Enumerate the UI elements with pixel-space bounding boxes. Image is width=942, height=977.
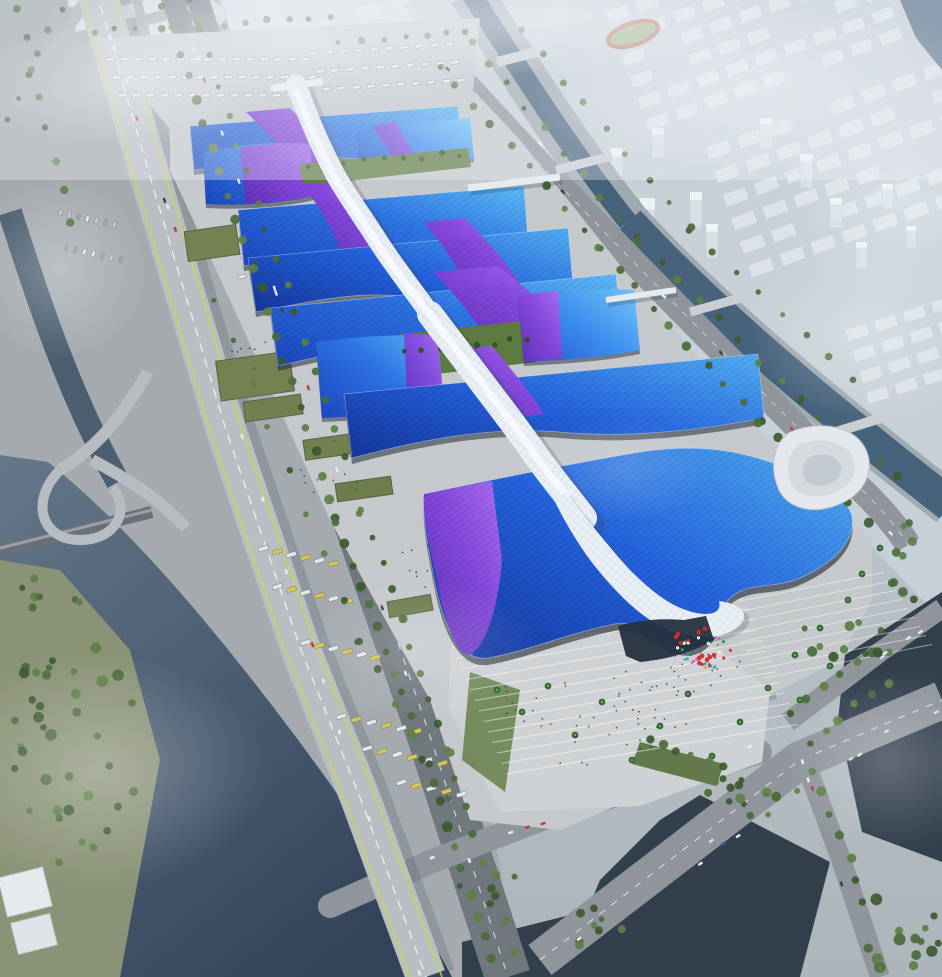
person <box>286 341 288 343</box>
tree <box>419 757 426 764</box>
tree <box>853 658 861 666</box>
tree <box>446 748 454 756</box>
festival-flag <box>676 646 679 649</box>
tree <box>893 472 902 481</box>
person <box>639 748 641 750</box>
tree <box>735 781 744 790</box>
tree <box>898 587 908 597</box>
tree <box>340 539 350 549</box>
person <box>651 686 653 688</box>
tree <box>318 472 327 481</box>
person <box>711 670 713 672</box>
tree <box>878 627 885 634</box>
tree <box>462 803 469 810</box>
palm-crown <box>521 711 523 713</box>
tree <box>726 783 734 791</box>
person <box>350 455 352 457</box>
red-lantern <box>697 661 702 666</box>
person <box>576 725 578 727</box>
tree <box>734 336 741 343</box>
palm-crown <box>847 599 849 601</box>
palm-crown <box>631 759 633 761</box>
garden-tree <box>492 342 497 347</box>
person <box>666 683 668 685</box>
person <box>574 741 576 743</box>
person <box>411 549 413 551</box>
tree <box>900 523 906 529</box>
tree <box>370 535 376 541</box>
person <box>624 701 626 703</box>
tree <box>29 604 37 612</box>
person <box>673 687 675 689</box>
tree <box>451 843 458 850</box>
person <box>674 655 676 657</box>
tree <box>263 307 272 316</box>
person <box>714 657 716 659</box>
tree <box>840 645 848 653</box>
person <box>523 720 525 722</box>
person <box>693 691 695 693</box>
tree <box>740 399 747 406</box>
tree <box>341 453 348 460</box>
person <box>681 663 683 665</box>
person <box>644 728 646 730</box>
tree <box>426 760 433 767</box>
tree <box>480 859 487 866</box>
tree <box>430 778 439 787</box>
festival-flag <box>729 649 732 652</box>
person <box>532 710 534 712</box>
tree <box>348 484 354 490</box>
person <box>540 725 542 727</box>
tree <box>845 621 855 631</box>
tree <box>575 941 584 950</box>
tree <box>321 550 328 557</box>
festival-flag <box>697 636 700 639</box>
tree <box>888 579 896 587</box>
person <box>650 746 652 748</box>
festival-flag <box>722 656 725 659</box>
festival-flag <box>722 640 725 643</box>
person <box>579 716 581 718</box>
person <box>304 482 306 484</box>
tree <box>442 821 453 832</box>
palm-crown <box>879 547 881 549</box>
person <box>716 668 718 670</box>
person <box>344 473 346 475</box>
tree <box>864 518 874 528</box>
tree <box>802 625 808 631</box>
person <box>616 727 618 729</box>
tree <box>762 788 771 797</box>
tree <box>76 599 83 606</box>
person <box>638 711 640 713</box>
person <box>685 723 687 725</box>
person <box>639 739 641 741</box>
palm-crown <box>547 685 549 687</box>
person <box>656 726 658 728</box>
tree <box>290 308 297 315</box>
person <box>613 705 615 707</box>
fog-blob <box>530 415 710 525</box>
person <box>356 489 358 491</box>
person <box>317 479 319 481</box>
person <box>264 341 266 343</box>
tree <box>930 912 937 919</box>
tree <box>816 643 823 650</box>
tree <box>716 314 723 321</box>
tree <box>451 775 457 781</box>
tree <box>847 854 856 863</box>
festival-flag <box>718 651 721 654</box>
tree <box>381 560 387 566</box>
festival-flag <box>704 662 707 665</box>
person <box>254 348 256 350</box>
person <box>608 734 610 736</box>
tree <box>301 339 308 346</box>
tree <box>302 424 310 432</box>
aerial-render <box>0 0 942 977</box>
person <box>515 710 517 712</box>
person <box>641 682 643 684</box>
person <box>720 675 722 677</box>
palm-crown <box>601 701 603 703</box>
tree <box>815 415 820 420</box>
tree <box>481 932 490 941</box>
tree <box>899 552 907 560</box>
garden-tree <box>418 348 424 354</box>
tree <box>862 650 869 657</box>
person <box>616 710 618 712</box>
person <box>593 717 595 719</box>
person <box>231 350 233 352</box>
tree <box>491 892 499 900</box>
festival-flag <box>687 653 690 656</box>
tree <box>407 729 415 737</box>
fog-blob <box>300 580 540 720</box>
tree <box>445 795 451 801</box>
tree <box>512 874 518 880</box>
tree <box>312 446 322 456</box>
person <box>237 351 239 353</box>
person <box>739 661 741 663</box>
tree <box>719 762 727 770</box>
person <box>303 475 305 477</box>
tree <box>719 775 726 782</box>
person <box>736 666 738 668</box>
person <box>676 694 678 696</box>
tree <box>765 812 771 818</box>
tree <box>332 519 340 527</box>
tree <box>651 306 657 312</box>
red-lantern <box>697 655 702 660</box>
tree <box>599 916 605 922</box>
festival-flag <box>704 666 707 669</box>
tree <box>910 596 918 604</box>
tree <box>852 876 860 884</box>
tree <box>250 380 256 386</box>
person <box>356 481 358 483</box>
person <box>415 571 417 573</box>
tree <box>908 537 917 546</box>
tree <box>720 381 726 387</box>
tree <box>753 418 762 427</box>
person <box>629 689 631 691</box>
tree <box>331 425 339 433</box>
palm-crown <box>819 627 821 629</box>
tree <box>935 940 942 947</box>
tree <box>595 926 603 934</box>
person <box>427 544 429 546</box>
tree <box>807 646 817 656</box>
person <box>664 718 666 720</box>
person <box>674 726 676 728</box>
tree <box>877 965 883 971</box>
tree <box>787 710 794 717</box>
tree <box>926 946 937 957</box>
person <box>618 695 620 697</box>
tree <box>322 396 329 403</box>
person <box>565 685 567 687</box>
person <box>550 723 552 725</box>
tree <box>457 883 463 889</box>
tree <box>704 789 712 797</box>
tree <box>510 948 518 956</box>
festival-flag <box>707 642 710 645</box>
tree <box>264 424 270 430</box>
palm-crown <box>574 734 576 736</box>
person <box>575 736 577 738</box>
tree <box>705 757 714 766</box>
scene-svg <box>0 0 942 977</box>
red-lantern <box>696 630 701 635</box>
person <box>332 480 334 482</box>
red-lantern <box>707 655 712 660</box>
tree <box>357 507 364 514</box>
tree <box>828 652 838 662</box>
tree <box>746 812 754 820</box>
tree <box>872 953 883 964</box>
palm-crown <box>687 693 689 695</box>
festival-flag <box>717 637 720 640</box>
person <box>559 762 561 764</box>
red-lantern <box>676 632 681 637</box>
person <box>684 659 686 661</box>
tree <box>910 934 920 944</box>
person <box>581 762 583 764</box>
person <box>300 469 302 471</box>
person <box>613 677 615 679</box>
tree <box>909 961 918 970</box>
tree <box>19 585 25 591</box>
tree <box>894 933 906 945</box>
tree <box>688 752 694 758</box>
person <box>710 685 712 687</box>
tree <box>659 740 668 749</box>
tree <box>487 900 494 907</box>
tree <box>287 467 293 473</box>
tree <box>618 925 626 933</box>
person <box>663 657 665 659</box>
festival-flag <box>681 648 684 651</box>
person <box>626 744 628 746</box>
red-lantern <box>678 641 683 646</box>
tree <box>466 889 477 900</box>
tree <box>911 950 921 960</box>
tree <box>324 494 334 504</box>
tree <box>36 593 43 600</box>
tree <box>278 356 286 364</box>
person <box>619 693 621 695</box>
person <box>677 690 679 692</box>
hall-g-ribbon <box>518 291 562 362</box>
tree <box>491 870 500 879</box>
person <box>632 709 634 711</box>
tree <box>726 798 733 805</box>
tree <box>864 944 873 953</box>
garden-tree <box>524 337 530 343</box>
tree <box>30 574 38 582</box>
person <box>278 366 280 368</box>
tree <box>288 377 296 385</box>
person <box>673 671 675 673</box>
tree <box>672 747 680 755</box>
tree <box>735 793 745 803</box>
person <box>402 552 404 554</box>
person <box>564 682 566 684</box>
person <box>440 571 442 573</box>
tree <box>486 954 495 963</box>
person <box>427 570 429 572</box>
festival-flag <box>687 639 690 642</box>
tree <box>771 792 781 802</box>
person <box>409 570 411 572</box>
person <box>440 578 442 580</box>
person <box>655 709 657 711</box>
tree <box>875 650 882 657</box>
tree <box>350 563 357 570</box>
person <box>253 367 255 369</box>
tree <box>705 362 712 369</box>
person <box>313 492 315 494</box>
person <box>625 671 627 673</box>
tree <box>231 338 236 343</box>
tree <box>501 916 510 925</box>
palm-crown <box>711 755 713 757</box>
person <box>717 644 719 646</box>
person <box>541 718 543 720</box>
tree <box>303 511 309 517</box>
festival-flag <box>686 657 689 660</box>
tree <box>712 779 719 786</box>
person <box>699 652 701 654</box>
person <box>588 726 590 728</box>
tree <box>312 367 320 375</box>
tree <box>487 884 495 892</box>
person <box>637 718 639 720</box>
person <box>654 717 656 719</box>
tree <box>859 898 866 905</box>
palm-crown <box>799 699 801 701</box>
tree <box>90 642 101 653</box>
palm-crown <box>861 573 863 575</box>
tree <box>836 671 843 678</box>
palm-crown <box>739 721 741 723</box>
tree <box>922 925 929 932</box>
palm-crown <box>659 725 661 727</box>
person <box>678 676 680 678</box>
tree <box>473 912 483 922</box>
palm-crown <box>794 654 796 656</box>
garden-tree <box>402 349 407 354</box>
tree <box>855 619 862 626</box>
tree <box>298 404 305 411</box>
tree <box>272 332 280 340</box>
person <box>334 440 336 442</box>
person <box>535 697 537 699</box>
festival-flag <box>692 660 695 663</box>
tree <box>468 830 476 838</box>
tree <box>590 905 598 913</box>
festival-flag <box>708 664 711 667</box>
tree <box>436 796 445 805</box>
palm-crown <box>767 687 769 689</box>
tree <box>664 321 672 329</box>
person <box>649 689 651 691</box>
top-fog-band <box>0 0 942 180</box>
person <box>586 764 588 766</box>
tree <box>682 341 691 350</box>
garden-tree <box>507 336 512 341</box>
person <box>416 575 418 577</box>
palm-crown <box>829 665 831 667</box>
person <box>506 713 508 715</box>
tree <box>434 720 442 728</box>
person <box>249 347 251 349</box>
person <box>638 723 640 725</box>
red-lantern <box>703 626 708 631</box>
person <box>511 702 513 704</box>
tree <box>456 864 464 872</box>
person <box>656 685 658 687</box>
festival-flag <box>713 665 716 668</box>
tree <box>646 735 654 743</box>
red-lantern <box>712 653 717 658</box>
person <box>670 667 672 669</box>
tree <box>870 893 882 905</box>
person <box>685 679 687 681</box>
person <box>240 348 242 350</box>
tree <box>876 460 882 466</box>
tree <box>576 909 585 918</box>
